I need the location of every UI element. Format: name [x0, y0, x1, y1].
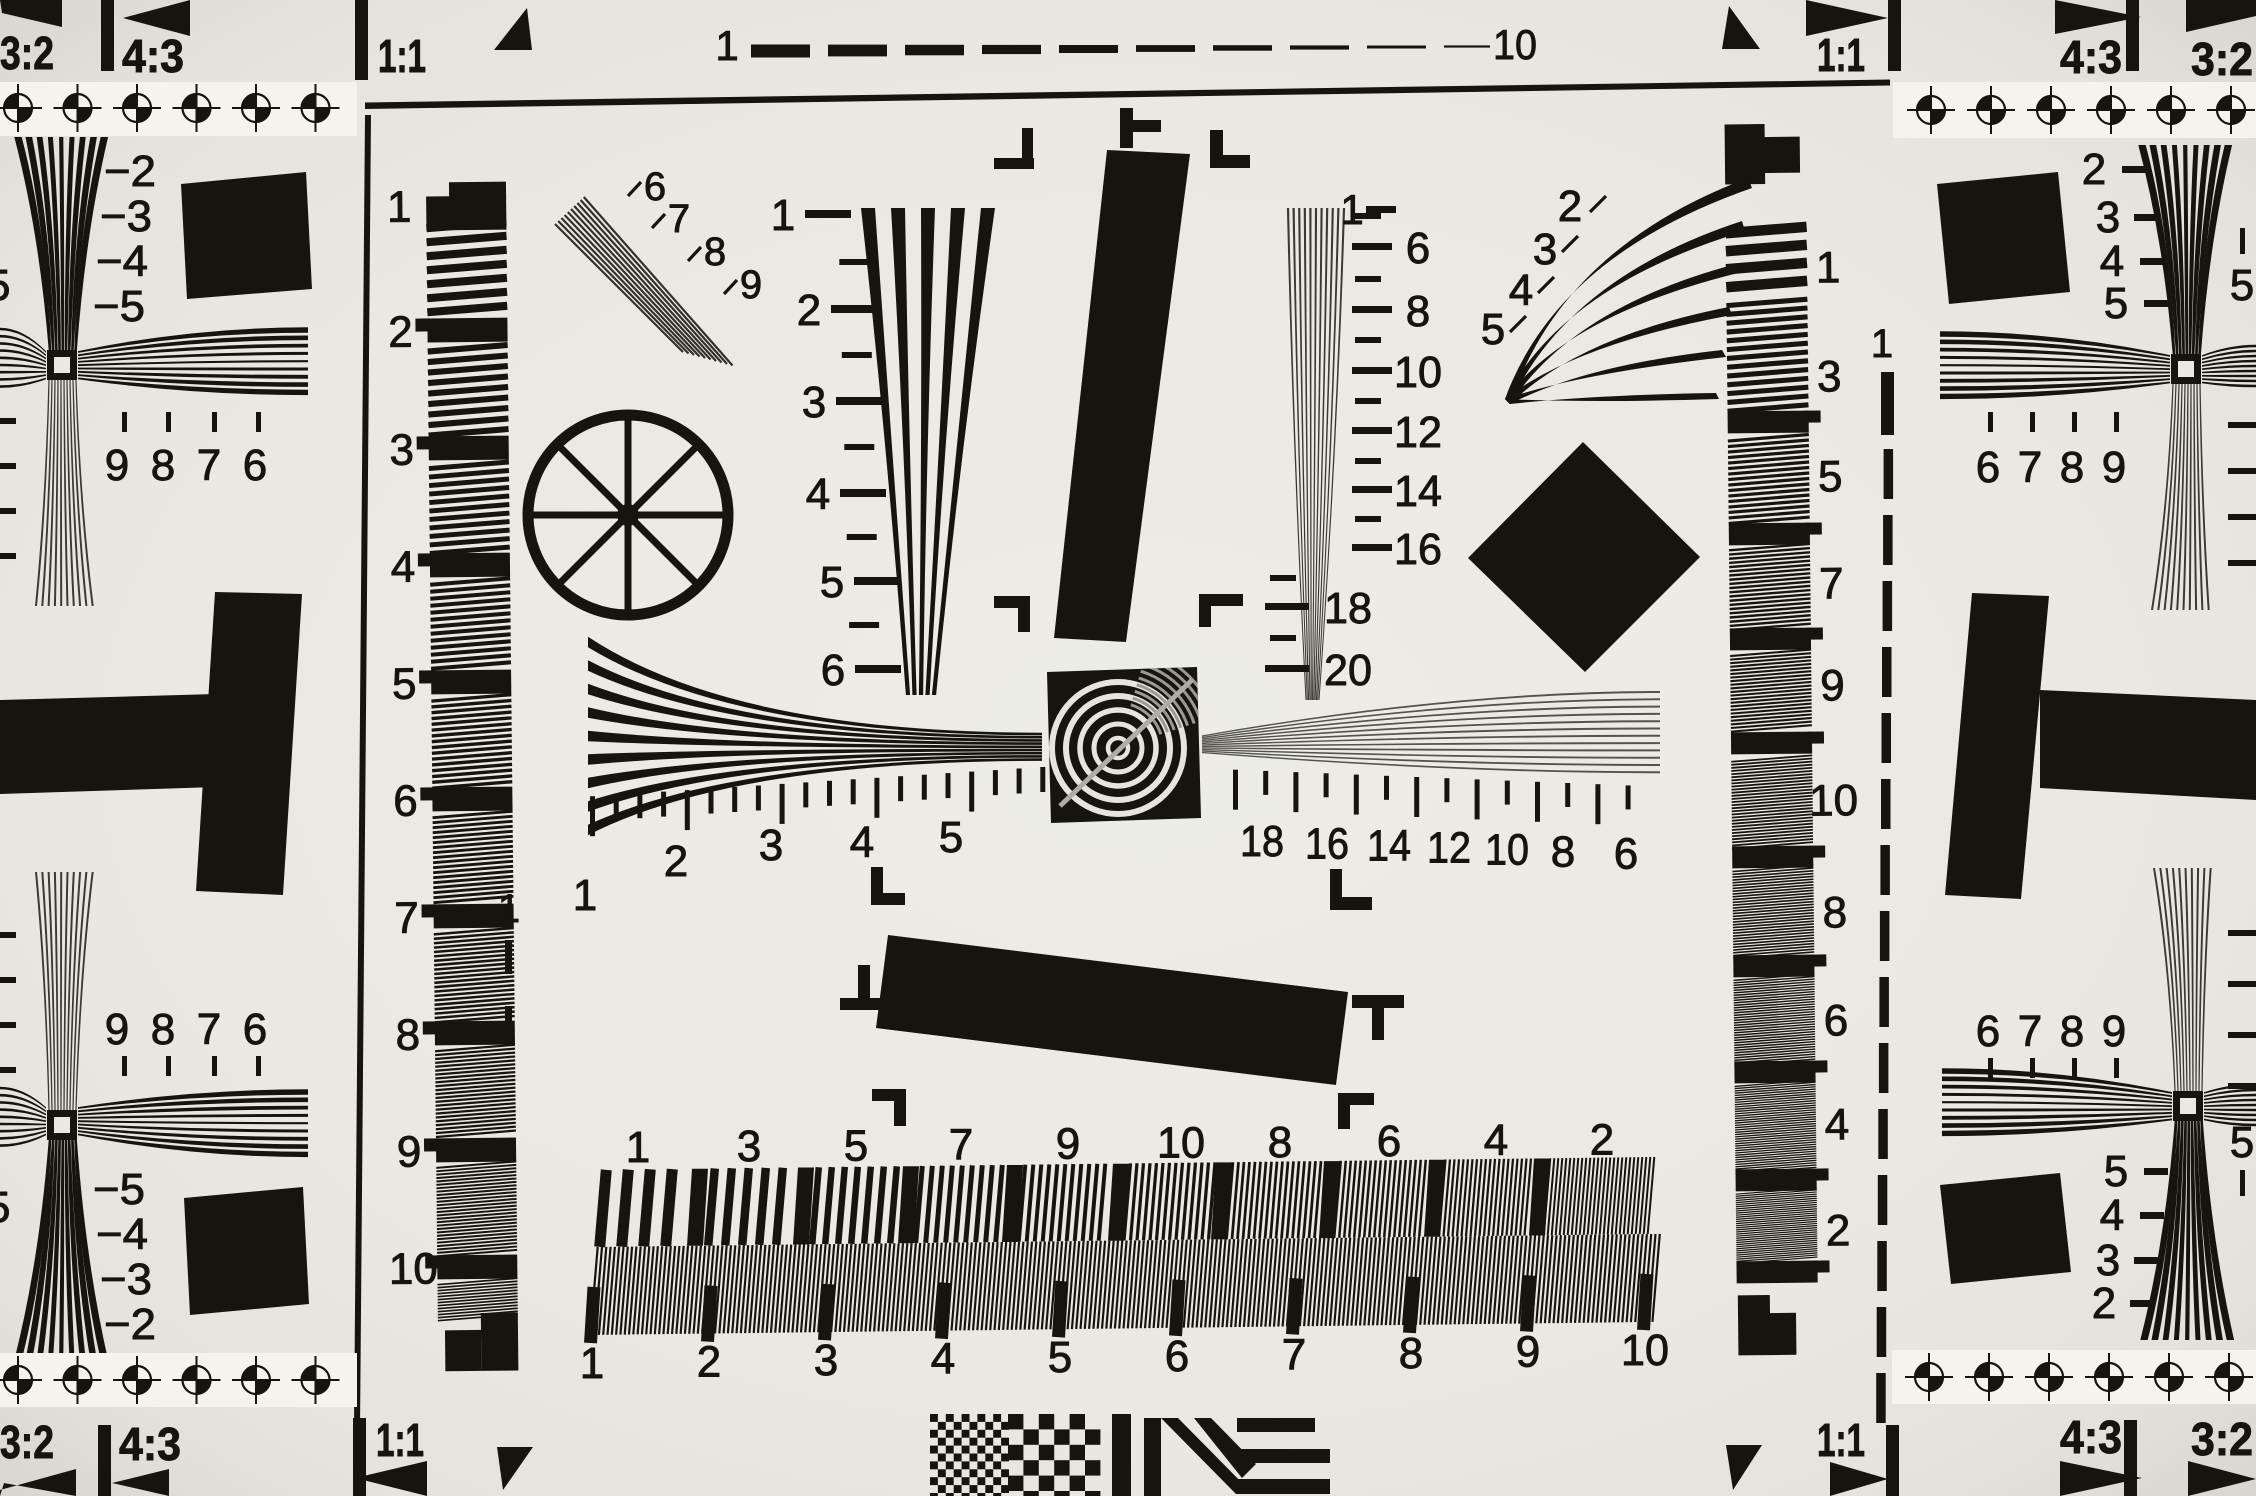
svg-text:2: 2 [797, 286, 821, 335]
svg-text:10: 10 [1493, 21, 1537, 68]
svg-text:2: 2 [388, 308, 413, 357]
svg-text:14: 14 [1394, 467, 1442, 516]
svg-text:4: 4 [1509, 266, 1533, 315]
svg-text:1: 1 [1871, 322, 1893, 366]
svg-text:6: 6 [1976, 1007, 2000, 1056]
svg-text:5: 5 [939, 813, 963, 862]
svg-text:6: 6 [644, 165, 666, 209]
svg-text:8: 8 [151, 1005, 175, 1054]
svg-text:2: 2 [697, 1338, 721, 1387]
svg-text:6: 6 [1377, 1117, 1401, 1166]
svg-text:9: 9 [1516, 1328, 1540, 1377]
svg-text:2: 2 [2082, 145, 2106, 194]
svg-text:9: 9 [2102, 443, 2126, 492]
svg-text:4: 4 [1825, 1100, 1850, 1149]
svg-text:4:3: 4:3 [122, 30, 184, 82]
svg-text:3:2: 3:2 [2191, 1413, 2253, 1465]
svg-text:8: 8 [395, 1011, 420, 1060]
svg-text:5: 5 [2230, 1118, 2254, 1167]
svg-text:5: 5 [392, 660, 417, 709]
svg-text:10: 10 [389, 1244, 438, 1294]
svg-text:7: 7 [394, 894, 419, 943]
svg-text:1:1: 1:1 [1817, 1414, 1865, 1466]
svg-text:9: 9 [2102, 1007, 2126, 1056]
svg-text:7: 7 [197, 441, 221, 490]
svg-text:6: 6 [1823, 996, 1848, 1045]
svg-text:−3: −3 [100, 1255, 152, 1304]
svg-text:7: 7 [1282, 1330, 1306, 1379]
svg-text:12: 12 [1394, 408, 1442, 457]
svg-text:5: 5 [844, 1121, 868, 1170]
svg-text:7: 7 [2018, 1007, 2042, 1056]
svg-text:−4: −4 [96, 1210, 148, 1259]
svg-text:3: 3 [802, 378, 826, 427]
svg-text:3:2: 3:2 [2191, 33, 2253, 85]
svg-text:7: 7 [2018, 443, 2042, 492]
svg-text:9: 9 [1056, 1120, 1080, 1169]
svg-text:6: 6 [1165, 1332, 1189, 1381]
svg-text:6: 6 [1976, 443, 2000, 492]
svg-text:8: 8 [704, 230, 726, 274]
svg-text:1: 1 [771, 191, 795, 240]
svg-text:8: 8 [1399, 1329, 1423, 1378]
svg-text:7: 7 [197, 1005, 221, 1054]
svg-text:5: 5 [1481, 305, 1505, 354]
svg-text:10: 10 [1485, 826, 1529, 875]
svg-text:18: 18 [1240, 817, 1284, 866]
svg-text:5: 5 [1048, 1333, 1072, 1382]
svg-text:6: 6 [1614, 830, 1638, 879]
svg-text:4: 4 [806, 470, 830, 519]
svg-text:4: 4 [2100, 1191, 2124, 1240]
svg-text:−5: −5 [93, 1165, 145, 1214]
svg-text:3:2: 3:2 [0, 1416, 54, 1468]
svg-text:−5: −5 [93, 282, 145, 331]
svg-text:6: 6 [1406, 224, 1430, 273]
svg-text:1: 1 [1340, 186, 1363, 233]
svg-text:2: 2 [2092, 1279, 2116, 1328]
svg-text:10: 10 [1621, 1326, 1669, 1375]
svg-text:5: 5 [820, 558, 844, 607]
svg-text:1: 1 [715, 22, 738, 69]
svg-text:4:3: 4:3 [119, 1418, 181, 1470]
svg-text:2: 2 [664, 837, 688, 886]
svg-text:7: 7 [668, 197, 690, 241]
svg-text:2: 2 [1826, 1206, 1851, 1255]
svg-text:1:1: 1:1 [376, 1414, 424, 1466]
svg-text:2: 2 [1590, 1115, 1614, 1164]
svg-text:3: 3 [737, 1122, 761, 1171]
svg-text:9: 9 [740, 263, 762, 307]
svg-text:1: 1 [1816, 243, 1841, 292]
svg-text:12: 12 [1427, 824, 1471, 873]
svg-text:−3: −3 [100, 192, 152, 241]
svg-text:−4: −4 [96, 237, 148, 286]
svg-text:14: 14 [1367, 821, 1411, 870]
svg-text:5: 5 [1818, 452, 1843, 501]
svg-text:10: 10 [1394, 348, 1442, 397]
svg-text:3: 3 [1817, 352, 1842, 401]
svg-text:−2: −2 [104, 147, 156, 196]
svg-text:3: 3 [1533, 225, 1557, 274]
svg-text:−2: −2 [104, 1300, 156, 1349]
svg-text:5: 5 [0, 1183, 10, 1232]
svg-text:4: 4 [1484, 1116, 1508, 1165]
svg-text:16: 16 [1305, 819, 1349, 868]
svg-text:8: 8 [1822, 888, 1847, 937]
svg-text:8: 8 [2060, 443, 2084, 492]
svg-text:5: 5 [2104, 279, 2128, 328]
svg-text:3: 3 [2096, 1236, 2120, 1285]
svg-text:8: 8 [1406, 287, 1430, 336]
svg-text:8: 8 [1268, 1118, 1292, 1167]
svg-text:1: 1 [573, 871, 597, 920]
svg-text:1: 1 [498, 887, 520, 931]
svg-text:7: 7 [949, 1120, 973, 1169]
svg-text:4: 4 [931, 1335, 955, 1384]
svg-text:10: 10 [1157, 1119, 1205, 1168]
svg-text:3: 3 [759, 821, 783, 870]
svg-text:9: 9 [105, 441, 129, 490]
svg-text:20: 20 [1324, 646, 1372, 695]
svg-text:18: 18 [1324, 584, 1372, 633]
svg-text:9: 9 [397, 1128, 422, 1177]
svg-text:7: 7 [1819, 559, 1844, 608]
svg-text:8: 8 [151, 441, 175, 490]
svg-text:6: 6 [393, 777, 418, 826]
svg-text:1: 1 [387, 183, 412, 232]
svg-text:8: 8 [2060, 1007, 2084, 1056]
svg-text:5: 5 [2230, 261, 2254, 310]
svg-text:2: 2 [1558, 182, 1582, 231]
svg-text:6: 6 [243, 1005, 267, 1054]
svg-text:4: 4 [850, 818, 874, 867]
svg-text:6: 6 [821, 646, 845, 695]
svg-text:4:3: 4:3 [2060, 31, 2122, 83]
svg-text:16: 16 [1394, 525, 1442, 574]
svg-text:5: 5 [0, 261, 10, 310]
svg-text:1: 1 [580, 1339, 604, 1388]
svg-text:8: 8 [1551, 828, 1575, 877]
svg-text:6: 6 [243, 441, 267, 490]
svg-text:5: 5 [2104, 1147, 2128, 1196]
svg-text:3: 3 [2096, 193, 2120, 242]
svg-text:3: 3 [389, 426, 414, 475]
svg-text:3:2: 3:2 [0, 27, 54, 79]
svg-text:4:3: 4:3 [2060, 1411, 2122, 1463]
svg-text:9: 9 [105, 1005, 129, 1054]
svg-text:1:1: 1:1 [1817, 29, 1865, 81]
svg-text:1: 1 [626, 1123, 650, 1172]
svg-text:1:1: 1:1 [378, 30, 426, 82]
svg-text:10: 10 [1809, 776, 1858, 826]
svg-text:9: 9 [1820, 661, 1845, 710]
svg-text:4: 4 [390, 543, 415, 592]
svg-text:3: 3 [814, 1336, 838, 1385]
